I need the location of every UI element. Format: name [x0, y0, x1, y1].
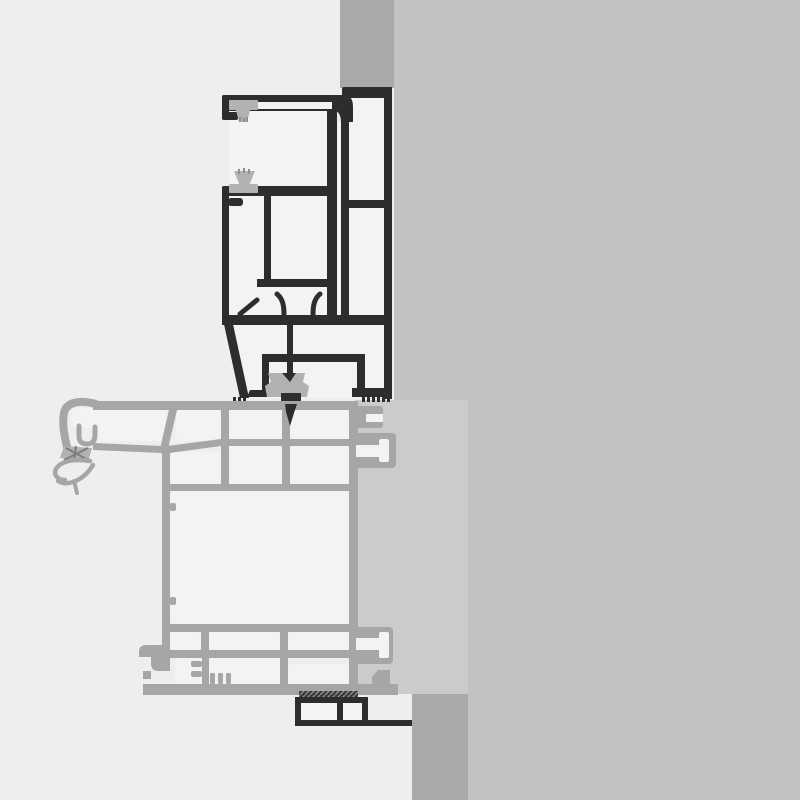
background-notch-bottom	[394, 694, 412, 800]
wall-strip-top	[340, 0, 394, 88]
section-drawing	[0, 0, 800, 800]
wall-column-bottom	[412, 694, 468, 800]
dark-guide-profile	[222, 87, 392, 402]
rubber-gasket-lower	[265, 373, 309, 401]
background-regions	[0, 0, 800, 800]
technical-drawing-canvas	[0, 0, 800, 800]
guide-chambers	[229, 97, 384, 398]
compriband-hatch-strip	[299, 691, 358, 698]
